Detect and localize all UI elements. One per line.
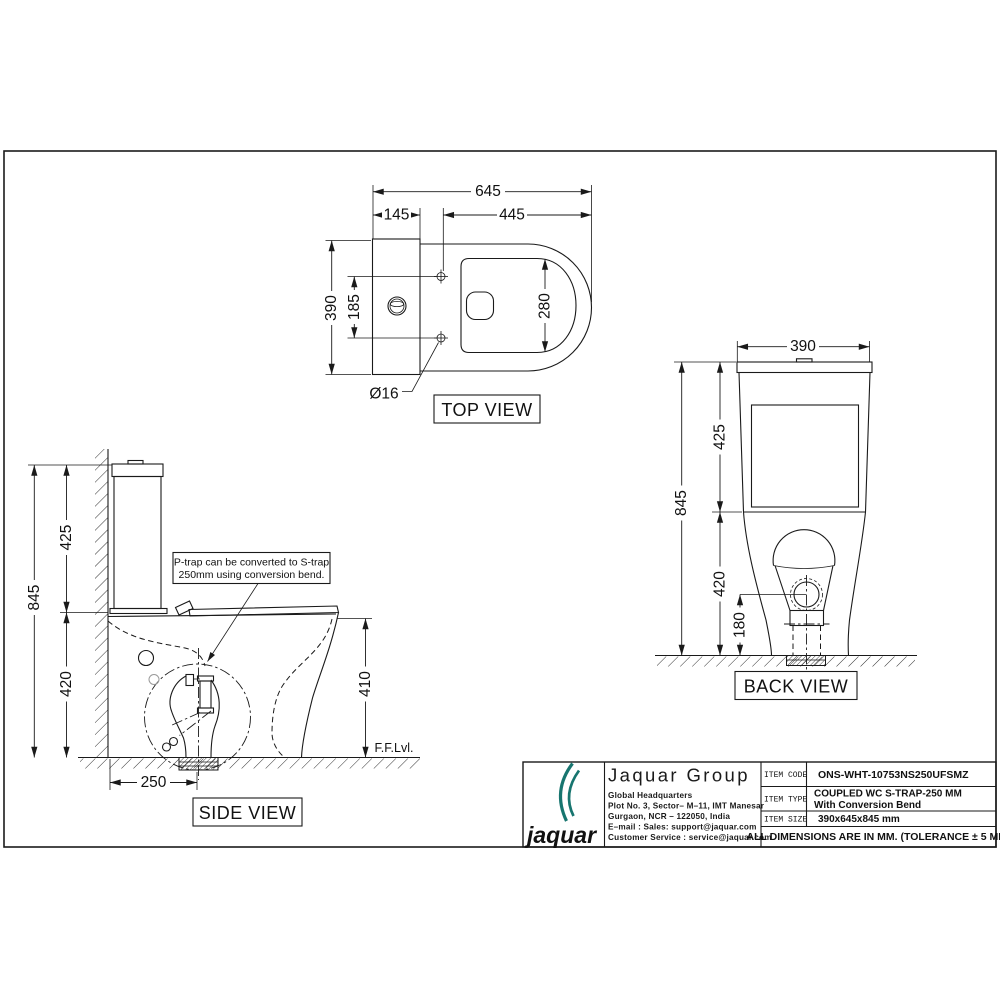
dim-390-top: 390	[323, 295, 340, 321]
flush-button-top	[388, 297, 406, 315]
dim-445: 445	[499, 207, 525, 224]
floor-hatch-side	[80, 759, 420, 769]
item-size-label: ITEM SIZE	[764, 816, 807, 825]
drawing-sheet: 645 145 445 390 185 280 Ø16 TOP VIEW	[0, 0, 1000, 1000]
top-view-seat	[461, 259, 576, 353]
title-block: jaquar Jaquar Group Global Headquarters …	[523, 762, 1000, 848]
side-tank-button	[128, 461, 143, 465]
trap-dome	[773, 530, 835, 566]
wall-hatch	[95, 449, 108, 757]
tolerance-note: ALL DIMENSIONS ARE IN MM. (TOLERANCE ± 5…	[747, 831, 1000, 843]
dim-425-back: 425	[712, 424, 729, 450]
dim-845-back: 845	[673, 490, 690, 516]
floor-level-label: F.F.Lvl.	[375, 741, 414, 755]
address-line-3: Gurgaon, NCR – 122050, India	[608, 812, 730, 821]
back-view: 390 845 425 420 180 BACK VIEW	[655, 338, 917, 699]
item-type-value-line2: With Conversion Bend	[814, 800, 921, 811]
side-tank-lid	[112, 464, 163, 477]
top-view-title: TOP VIEW	[441, 400, 532, 420]
dim-420-side: 420	[58, 671, 75, 697]
dim-420-back: 420	[712, 571, 729, 597]
side-view-title: SIDE VIEW	[199, 803, 297, 823]
side-tank-base	[110, 609, 167, 614]
back-bowl-right	[848, 512, 865, 656]
side-tank-body	[114, 477, 161, 609]
dim-410: 410	[357, 671, 374, 697]
jaquar-logo: jaquar	[524, 764, 597, 849]
trap-dome-base	[774, 566, 835, 569]
bowl-inner-dashed-right	[272, 619, 332, 757]
back-tank-body	[739, 373, 870, 513]
floor-hatch-back	[657, 657, 915, 667]
item-type-value-line1: COUPLED WC S-TRAP-250 MM	[814, 789, 962, 800]
dim-390-back: 390	[790, 338, 816, 355]
rim-line	[108, 614, 336, 617]
back-view-title: BACK VIEW	[744, 677, 849, 697]
back-tank-lid	[737, 362, 872, 373]
dim-645: 645	[475, 183, 501, 200]
dim-425-side: 425	[58, 525, 75, 551]
note-line2: 250mm using conversion bend.	[179, 569, 325, 581]
back-tank-button	[797, 359, 813, 362]
dim-hinge-hole: Ø16	[369, 386, 398, 403]
item-code-label: ITEM CODE	[764, 771, 807, 780]
note-line1: P-trap can be converted to S-trap	[174, 557, 329, 569]
top-view: 645 145 445 390 185 280 Ø16 TOP VIEW	[323, 183, 591, 423]
dim-145: 145	[384, 207, 410, 224]
sheet-border	[4, 151, 996, 847]
dim-845-side: 845	[26, 585, 43, 611]
top-view-water-spot	[467, 292, 494, 320]
logo-wordmark: jaquar	[524, 822, 597, 848]
side-fixing-hole	[139, 651, 154, 666]
side-faint-hole	[149, 675, 159, 685]
address-line-4: E–mail : Sales: support@jaquar.com	[608, 823, 757, 832]
dim-280: 280	[537, 293, 554, 319]
address-line-1: Global Headquarters	[608, 791, 693, 800]
bowl-front-profile	[302, 613, 339, 758]
side-view: P-trap can be converted to S-trap 250mm …	[26, 449, 420, 826]
company-name: Jaquar Group	[608, 765, 750, 786]
dim-180: 180	[732, 612, 749, 638]
back-tank-recess	[752, 405, 859, 507]
bowl-inner-dashed-left	[108, 621, 205, 666]
dim-185: 185	[346, 294, 363, 320]
item-type-label: ITEM TYPE	[764, 796, 807, 805]
logo-swoosh-2	[569, 771, 579, 817]
dim-250: 250	[141, 774, 167, 791]
address-line-2: Plot No. 3, Sector– M–11, IMT Manesar	[608, 802, 765, 811]
seat-hinge	[176, 601, 194, 615]
item-code-value: ONS-WHT-10753NS250UFSMZ	[818, 769, 969, 781]
technical-drawing-svg: 645 145 445 390 185 280 Ø16 TOP VIEW	[0, 0, 1000, 1000]
item-size-value: 390x645x845 mm	[818, 814, 900, 825]
note-arrow	[208, 584, 259, 662]
